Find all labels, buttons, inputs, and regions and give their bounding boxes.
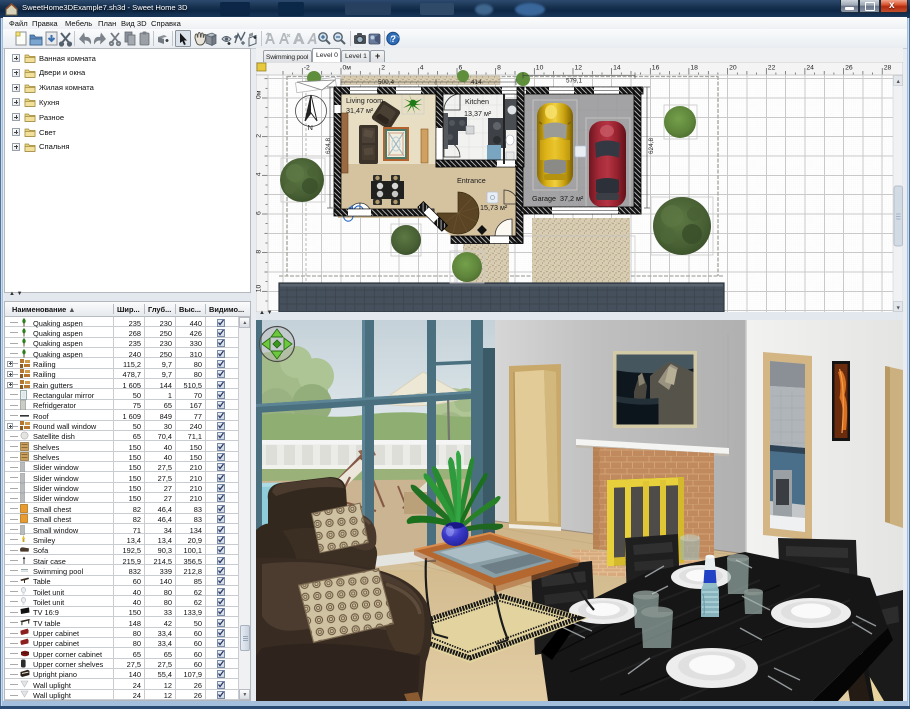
svg-text:24: 24: [806, 65, 814, 72]
svg-text:▼: ▼: [896, 306, 901, 312]
svg-text:13,37 м²: 13,37 м²: [464, 109, 492, 118]
svg-text:4: 4: [256, 172, 263, 176]
svg-text:16: 16: [652, 65, 660, 72]
svg-text:14: 14: [613, 65, 621, 72]
svg-text:15,73 м²: 15,73 м²: [480, 203, 508, 212]
svg-text:28: 28: [884, 65, 892, 72]
svg-text:37,2 м²: 37,2 м²: [560, 194, 584, 203]
svg-text:12: 12: [575, 65, 583, 72]
svg-text:624,8: 624,8: [325, 138, 332, 154]
svg-text:31,47 м²: 31,47 м²: [346, 106, 374, 115]
svg-text:Kitchen: Kitchen: [465, 97, 489, 106]
svg-text:2: 2: [381, 65, 385, 72]
svg-text:?: ?: [390, 34, 396, 45]
svg-text:579,1: 579,1: [566, 78, 582, 85]
svg-text:10: 10: [536, 65, 544, 72]
svg-text:2: 2: [256, 134, 263, 138]
svg-text:6: 6: [256, 211, 263, 215]
svg-text:18: 18: [690, 65, 698, 72]
svg-text:Entrance: Entrance: [457, 176, 486, 185]
svg-text:0м: 0м: [343, 65, 352, 72]
svg-text:8: 8: [497, 65, 501, 72]
svg-text:20: 20: [729, 65, 737, 72]
svg-text:624,8: 624,8: [648, 138, 655, 154]
svg-text:Garage: Garage: [532, 194, 556, 203]
svg-text:-2: -2: [304, 65, 310, 72]
svg-text:0м: 0м: [256, 90, 263, 99]
svg-text:4: 4: [420, 65, 424, 72]
svg-text:414: 414: [471, 79, 482, 86]
svg-text:▲: ▲: [896, 79, 901, 85]
svg-text:10: 10: [256, 285, 263, 293]
svg-text:8: 8: [256, 250, 263, 254]
svg-text:N: N: [308, 123, 313, 132]
svg-text:22: 22: [768, 65, 776, 72]
svg-text:Living room: Living room: [346, 96, 383, 105]
svg-text:500,4: 500,4: [378, 79, 394, 86]
svg-text:26: 26: [845, 65, 853, 72]
